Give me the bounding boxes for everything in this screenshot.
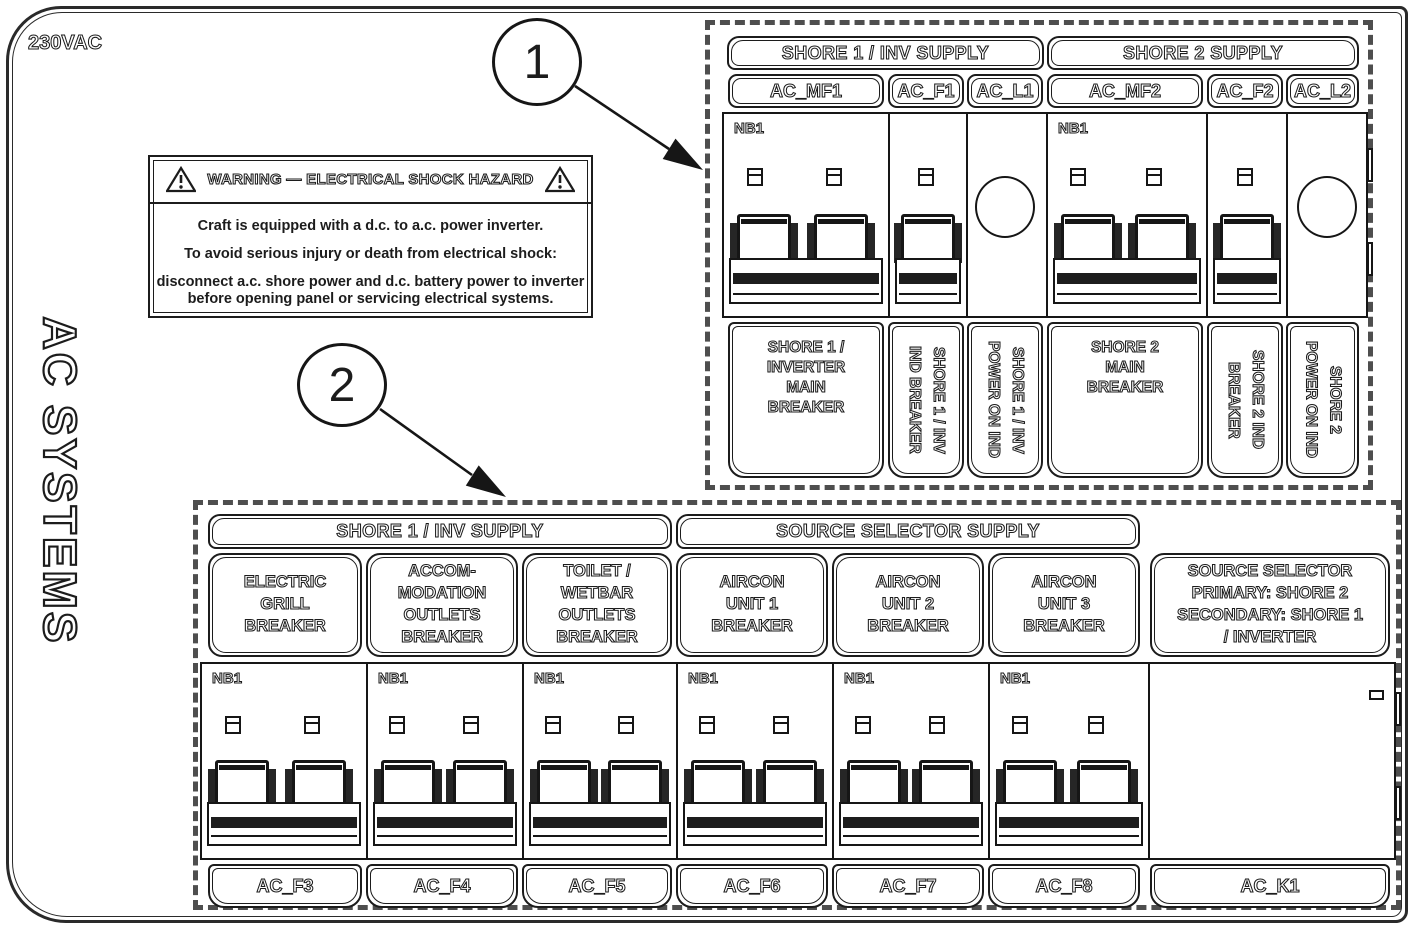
breaker-description: SHORE 2 IND BREAKER [1221,350,1269,449]
breaker-module-ac-mf1: NB1 [724,114,888,316]
circuit-tag: AC_F6 [723,876,780,897]
group-header-label: SHORE 2 SUPPLY [1123,43,1283,64]
breaker-module-ac-f7: NB1 [832,664,988,858]
breaker-toggle [1003,760,1057,808]
breaker-toggle [1077,760,1131,808]
circuit-tag: AC_F4 [413,876,470,897]
module-type-label: NB1 [1058,120,1088,137]
module-type-label: NB1 [378,670,408,687]
breaker-toggle [847,760,901,808]
indicator-window [855,716,871,734]
breaker-module-ac-f1 [888,114,966,316]
warning-text: Craft is equipped with a d.c. to a.c. po… [150,206,591,316]
indicator-window [1070,168,1086,186]
indicator-window [618,716,634,734]
power-on-indicator-lamp [1297,176,1357,238]
breaker-description-tab: SHORE 2 IND BREAKER [1207,322,1283,478]
indicator-window [699,716,715,734]
indicator-window [225,716,241,734]
breaker-tag: AC_MF2 [1089,81,1161,102]
breaker-toggle [1220,214,1274,262]
lamp-module-ac-l1 [966,114,1046,316]
breaker-tag-tab: AC_F2 [1207,74,1283,108]
breaker-module-ac-mf2: NB1 [1046,114,1206,316]
breaker-description: SHORE 1 / INV IND BREAKER [902,346,950,454]
circuit-tag: AC_K1 [1240,876,1299,897]
breaker-name-tab: ELECTRIC GRILL BREAKER [208,553,362,657]
breaker-toggle [814,214,868,262]
breaker-description-tab: SHORE 2 MAIN BREAKER [1047,322,1203,478]
module-type-label: NB1 [844,670,874,687]
breaker-tag: AC_F2 [1216,81,1273,102]
warning-triangle-icon [545,166,575,193]
warning-header: WARNING — ELECTRICAL SHOCK HAZARD [150,157,591,204]
circuit-tag: AC_F5 [568,876,625,897]
breaker-toggle [537,760,591,808]
toggle-base [207,802,361,846]
breaker-module-ac-f6: NB1 [676,664,832,858]
indicator-window [1237,168,1253,186]
indicator-window [304,716,320,734]
breaker-toggle [381,760,435,808]
breaker-name-tab: AIRCON UNIT 3 BREAKER [988,553,1140,657]
source-selector-name: SOURCE SELECTOR PRIMARY: SHORE 2 SECONDA… [1177,561,1363,648]
breaker-name-tab: AIRCON UNIT 2 BREAKER [832,553,984,657]
side-title-vertical: AC SYSTEMS [30,316,96,646]
callout-2-number: 2 [329,358,356,413]
module-type-label: NB1 [734,120,764,137]
group-header-label: SHORE 1 / INV SUPPLY [782,43,989,64]
breaker-toggle [1061,214,1115,262]
breaker-toggle [919,760,973,808]
svg-text:AC SYSTEMS: AC SYSTEMS [34,316,86,645]
breaker-toggle [453,760,507,808]
module-type-label: NB1 [688,670,718,687]
mount-tab [1395,786,1401,820]
group-header-tab: SOURCE SELECTOR SUPPLY [676,514,1140,549]
breaker-description: SHORE 1 / INVERTER MAIN BREAKER [767,338,845,419]
breaker-description-tab: SHORE 1 / INV IND BREAKER [888,322,964,478]
circuit-tag-tab: AC_F4 [366,864,518,908]
circuit-tag-tab: AC_K1 [1150,864,1390,908]
indicator-window [389,716,405,734]
breaker-toggle [292,760,346,808]
breaker-name-tab: AIRCON UNIT 1 BREAKER [676,553,828,657]
group-header-tab: SHORE 1 / INV SUPPLY [727,36,1044,70]
breaker-description-tab: SHORE 1 / INV POWER ON IND [967,322,1043,478]
breaker-name: AIRCON UNIT 2 BREAKER [867,572,949,637]
circuit-tag: AC_F3 [256,876,313,897]
ac-systems-panel-drawing: 230VAC AC SYSTEMS WARNING — ELECTRICAL S… [0,0,1426,934]
group-header-tab: SHORE 2 SUPPLY [1047,36,1359,70]
breaker-name: AIRCON UNIT 1 BREAKER [711,572,793,637]
breaker-toggle [1135,214,1189,262]
circuit-tag-tab: AC_F6 [676,864,828,908]
breaker-name-tab: TOILET / WETBAR OUTLETS BREAKER [522,553,672,657]
toggle-base [895,258,961,304]
group-header-label: SOURCE SELECTOR SUPPLY [776,521,1040,542]
warning-title: WARNING — ELECTRICAL SHOCK HAZARD [207,171,533,188]
breaker-module-ac-f2 [1206,114,1286,316]
callout-1-number: 1 [524,35,551,90]
mount-tab [1395,692,1401,726]
breaker-tag: AC_F1 [897,81,954,102]
breaker-toggle [737,214,791,262]
toggle-base [729,258,883,304]
breaker-description: SHORE 2 POWER ON IND [1298,341,1346,458]
breaker-tag: AC_L1 [976,81,1033,102]
indicator-window [1088,716,1104,734]
breaker-toggle [215,760,269,808]
callout-2-badge: 2 [297,343,387,427]
warning-line: To avoid serious injury or death from el… [156,246,585,263]
warning-plate: WARNING — ELECTRICAL SHOCK HAZARD Craft … [148,155,593,318]
breaker-tag-tab: AC_F1 [888,74,964,108]
circuit-tag-tab: AC_F5 [522,864,672,908]
breaker-name-tab: ACCOM- MODATION OUTLETS BREAKER [366,553,518,657]
lamp-module-ac-l2 [1286,114,1370,316]
breaker-name: ELECTRIC GRILL BREAKER [244,572,327,637]
breaker-tag: AC_L2 [1294,81,1351,102]
warning-line: Craft is equipped with a d.c. to a.c. po… [156,218,585,235]
breaker-module-ac-f3: NB1 [202,664,366,858]
power-on-indicator-lamp [975,176,1035,238]
breaker-description-tab: SHORE 1 / INVERTER MAIN BREAKER [728,322,884,478]
indicator-window [773,716,789,734]
breaker-toggle [691,760,745,808]
breaker-module-row: NB1 NB1 [722,112,1368,318]
breaker-name: ACCOM- MODATION OUTLETS BREAKER [398,561,487,648]
indicator-window [826,168,842,186]
indicator-window [929,716,945,734]
mount-tab [1367,242,1373,276]
toggle-base [995,802,1143,846]
circuit-tag: AC_F8 [1035,876,1092,897]
breaker-module-row: NB1 NB1 NB1 NB1 [200,662,1396,860]
callout-1-badge: 1 [492,18,582,106]
toggle-base [1213,258,1281,304]
breaker-tag: AC_MF1 [770,81,842,102]
source-selector-module-ac-k1 [1148,664,1398,858]
breaker-toggle [608,760,662,808]
toggle-base [1053,258,1201,304]
toggle-base [683,802,827,846]
indicator-window [545,716,561,734]
breaker-description: SHORE 2 MAIN BREAKER [1087,338,1164,398]
breaker-name: TOILET / WETBAR OUTLETS BREAKER [556,561,638,648]
indicator-window [1146,168,1162,186]
circuit-tag-tab: AC_F7 [832,864,984,908]
indicator-window [747,168,763,186]
mount-tab [1367,148,1373,182]
breaker-toggle [763,760,817,808]
indicator-window [463,716,479,734]
module-type-label: NB1 [212,670,242,687]
module-type-label: NB1 [534,670,564,687]
breaker-module-ac-f5: NB1 [522,664,676,858]
toggle-base [373,802,517,846]
breaker-tag-tab: AC_MF1 [728,74,884,108]
breaker-description-tab: SHORE 2 POWER ON IND [1286,322,1359,478]
selector-indicator-window [1369,690,1384,700]
toggle-base [529,802,671,846]
breaker-module-ac-f4: NB1 [366,664,522,858]
indicator-window [918,168,934,186]
circuit-tag-tab: AC_F3 [208,864,362,908]
warning-line: disconnect a.c. shore power and d.c. bat… [156,274,585,308]
breaker-tag-tab: AC_MF2 [1047,74,1203,108]
breaker-tag-tab: AC_L2 [1286,74,1359,108]
breaker-tag-tab: AC_L1 [967,74,1043,108]
circuit-tag-tab: AC_F8 [988,864,1140,908]
group-header-tab: SHORE 1 / INV SUPPLY [208,514,672,549]
group-header-label: SHORE 1 / INV SUPPLY [336,521,543,542]
breaker-name: AIRCON UNIT 3 BREAKER [1023,572,1105,637]
toggle-base [839,802,983,846]
source-selector-name-tab: SOURCE SELECTOR PRIMARY: SHORE 2 SECONDA… [1150,553,1390,657]
breaker-module-ac-f8: NB1 [988,664,1148,858]
breaker-toggle [901,214,955,262]
breaker-description: SHORE 1 / INV POWER ON IND [981,341,1029,458]
warning-triangle-icon [166,166,196,193]
circuit-tag: AC_F7 [879,876,936,897]
module-type-label: NB1 [1000,670,1030,687]
indicator-window [1012,716,1028,734]
voltage-label: 230VAC [28,32,102,55]
